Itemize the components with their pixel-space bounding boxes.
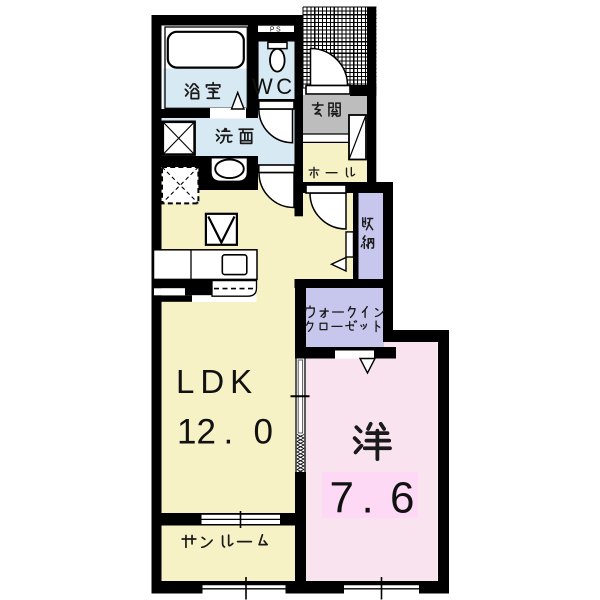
svg-text:12: 12: [177, 413, 216, 452]
svg-text:PS: PS: [270, 27, 282, 34]
svg-text:0: 0: [254, 413, 273, 452]
svg-text:LDK: LDK: [176, 363, 258, 400]
svg-text:.: .: [362, 474, 374, 523]
svg-text:6: 6: [390, 474, 414, 523]
svg-text:WC: WC: [252, 74, 296, 99]
svg-text:.: .: [224, 413, 234, 452]
svg-text:7: 7: [330, 474, 354, 523]
